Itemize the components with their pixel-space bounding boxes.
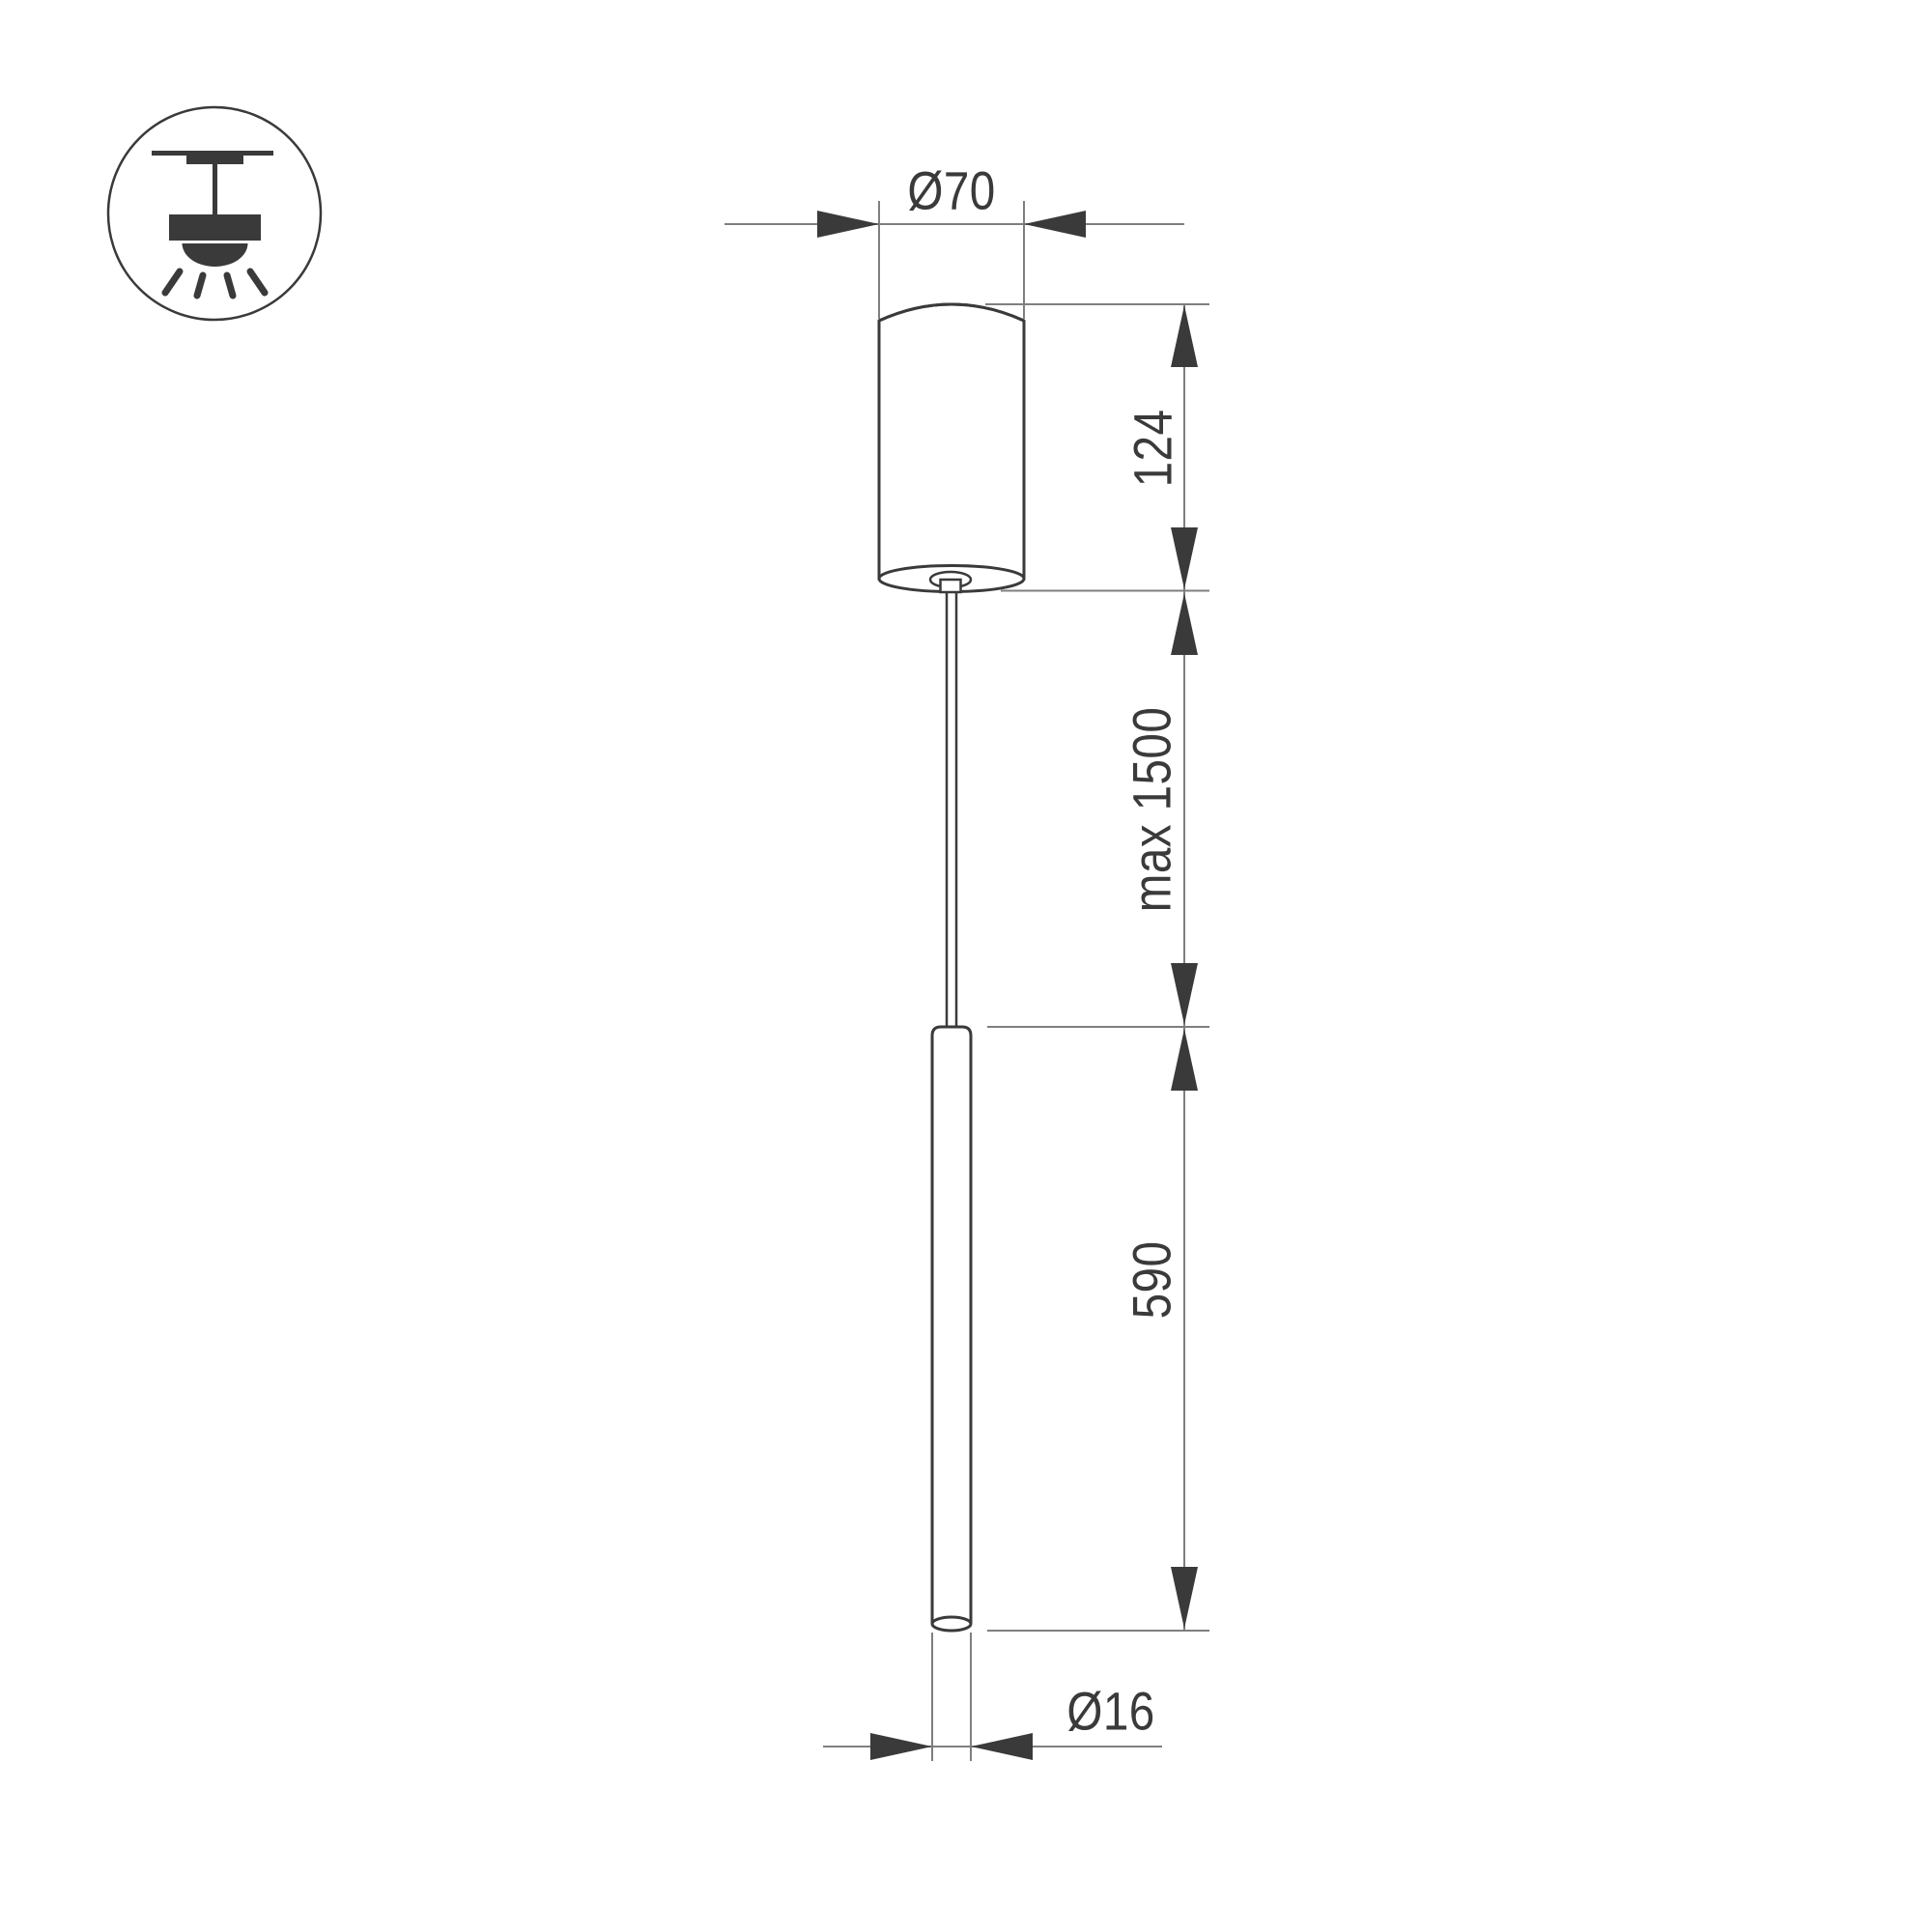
cable-gland: [941, 580, 961, 592]
arrow-tube-length-bottom: [1171, 1567, 1198, 1629]
technical-drawing-canvas: Ø70 124 max 1500 590 Ø16: [0, 0, 1932, 1932]
dim-label-tube-length: 590: [1121, 1241, 1183, 1320]
icon-ceiling-line: [152, 151, 273, 156]
dim-label-suspension-length: max 1500: [1121, 707, 1183, 912]
arrow-canopy-height-top: [1171, 305, 1198, 367]
arrow-canopy-diameter-left: [817, 211, 879, 238]
icon-lamp-body: [169, 214, 261, 241]
canopy-body: [879, 304, 1024, 579]
arrow-canopy-diameter-right: [1024, 211, 1086, 238]
icon-light-rays: [165, 271, 265, 296]
suspension-cable: [947, 592, 956, 1027]
icon-mount-bar: [186, 156, 243, 164]
dim-label-tube-diameter: Ø16: [1066, 1680, 1154, 1743]
arrow-suspension-bottom: [1171, 963, 1198, 1025]
pendant-lamp-drawing: [879, 304, 1024, 1631]
ceiling-pendant-light-icon: [108, 107, 321, 320]
arrow-suspension-top: [1171, 593, 1198, 655]
arrow-tube-diameter-left: [870, 1733, 932, 1760]
icon-light-dome: [183, 243, 248, 267]
lamp-tube-bottom-face: [932, 1617, 971, 1631]
arrow-tube-diameter-right: [971, 1733, 1033, 1760]
arrow-canopy-height-bottom: [1171, 527, 1198, 589]
lamp-tube-body: [932, 1027, 971, 1624]
dim-label-canopy-diameter: Ø70: [907, 159, 995, 222]
arrow-tube-length-top: [1171, 1029, 1198, 1091]
dim-label-canopy-height: 124: [1122, 410, 1184, 488]
drawing-linework: [0, 0, 1932, 1932]
icon-suspension-rod: [213, 164, 217, 214]
